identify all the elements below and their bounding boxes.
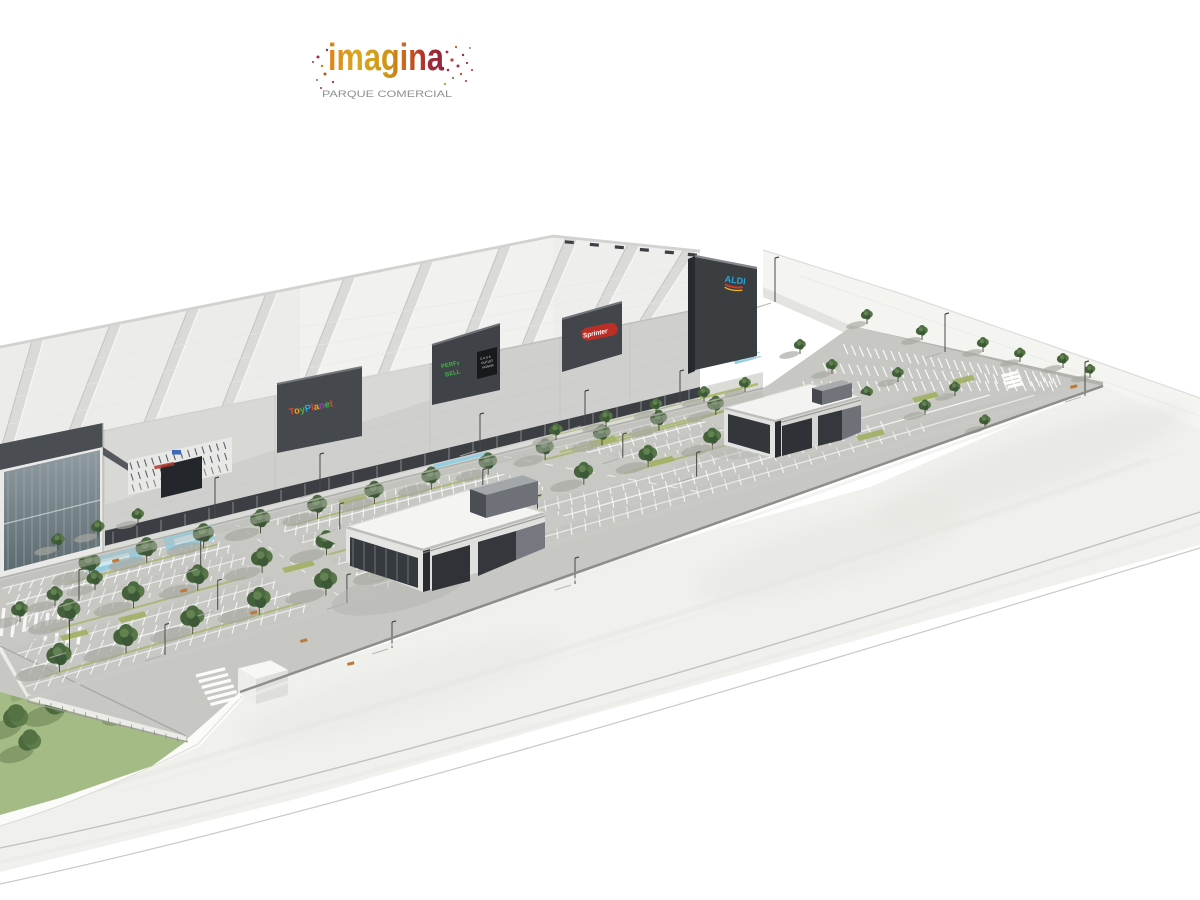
svg-text:PARQUE COMERCIAL: PARQUE COMERCIAL xyxy=(322,89,452,100)
svg-text:imagina: imagina xyxy=(328,37,445,79)
